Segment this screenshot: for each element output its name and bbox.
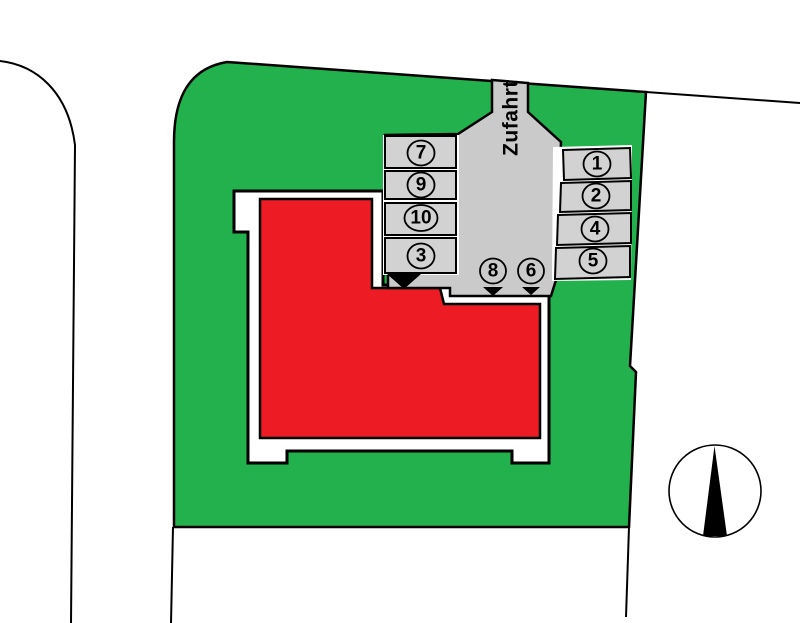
marker-8-number: 8	[488, 261, 499, 282]
stall-4-number: 4	[590, 219, 601, 240]
stall-1-number: 1	[592, 154, 603, 175]
boundary-line-bottom-left	[171, 527, 173, 623]
compass	[669, 445, 761, 537]
stall-5-number: 5	[588, 251, 599, 272]
street-edge-line	[0, 61, 75, 623]
site-plan: 7 9 10 3 1 2 4 5 8 6 Zufahrt	[0, 0, 800, 623]
boundary-line-bottom-right	[626, 527, 629, 617]
stall-2-number: 2	[591, 186, 602, 207]
marker-6-number: 6	[526, 261, 537, 282]
driveway-label: Zufahrt	[500, 80, 523, 156]
stall-3-number: 3	[416, 246, 427, 267]
stall-9-number: 9	[416, 175, 427, 196]
boundary-line-top-right	[646, 92, 800, 103]
stall-10-number: 10	[410, 208, 431, 229]
stall-7-number: 7	[416, 143, 427, 164]
